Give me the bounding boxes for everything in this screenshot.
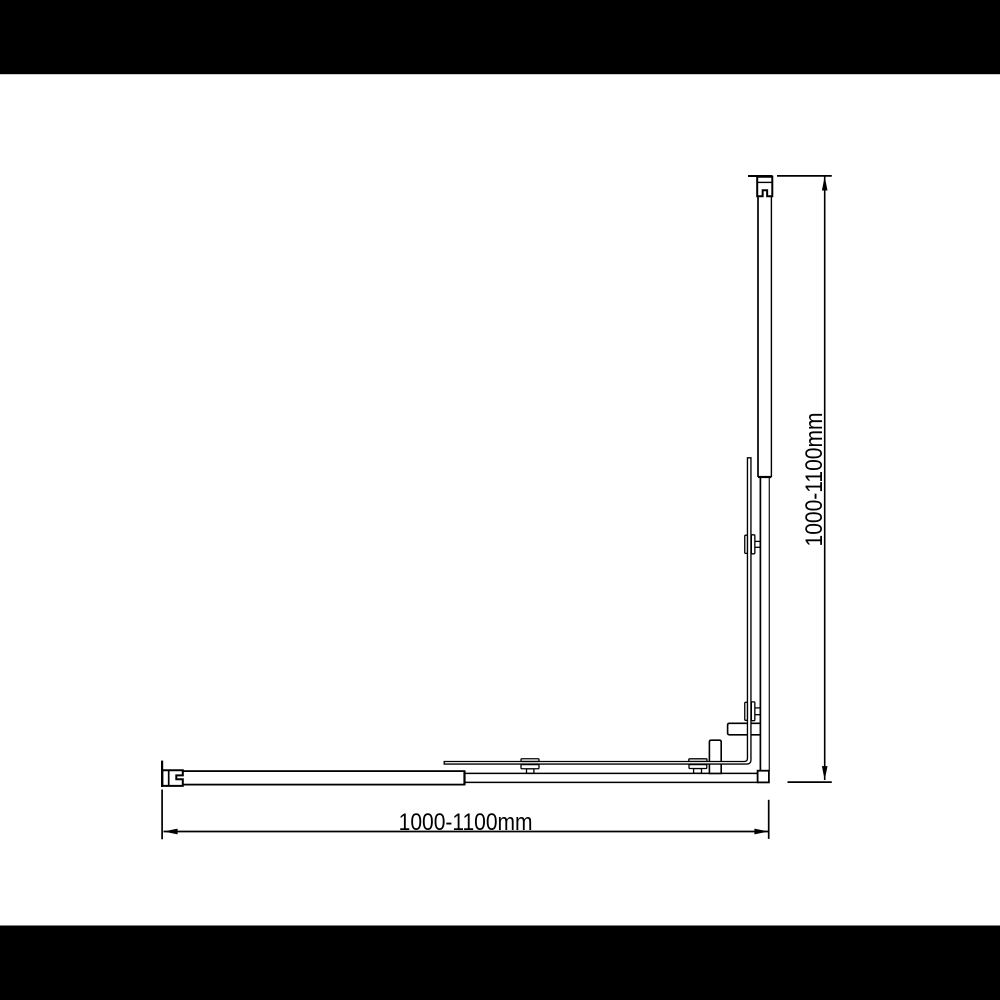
svg-text:1000-1100mm: 1000-1100mm bbox=[801, 413, 828, 547]
svg-text:1000-1100mm: 1000-1100mm bbox=[399, 809, 533, 836]
